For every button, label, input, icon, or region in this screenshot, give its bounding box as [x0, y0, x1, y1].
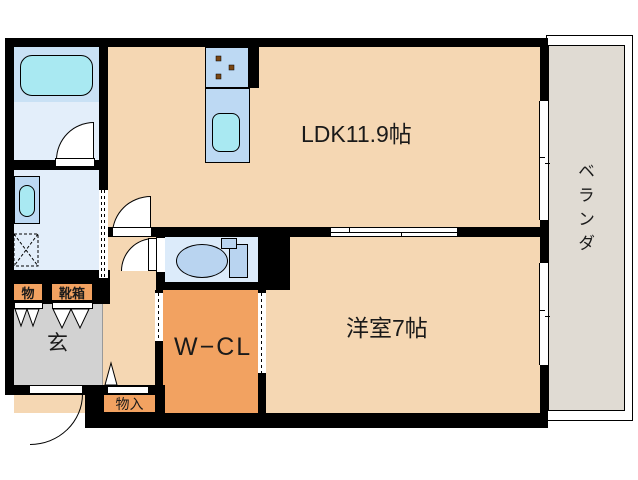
shoebox-door-leaf-icon — [71, 309, 89, 328]
storage-label-box: 物 — [13, 283, 43, 301]
entrance-step-arrow-icon — [105, 363, 117, 385]
shoebox-label: 靴箱 — [59, 283, 85, 302]
western-room-label: 洋室7帖 — [346, 317, 428, 340]
wcl-label: W−CL — [174, 335, 252, 360]
storage-door-leaf-icon — [27, 309, 39, 326]
plan-symbols — [0, 0, 638, 480]
storage-door-leaf-icon — [15, 309, 27, 326]
shoebox-door-leaf-icon — [53, 309, 71, 328]
stove-burner-icon — [229, 65, 234, 70]
hall-storage-label-box: 物入 — [103, 394, 156, 413]
stove-burner-icon — [216, 56, 221, 61]
floor-plan: LDK11.9帖 洋室7帖 W−CL 玄 ベランダ 物 靴箱 物入 — [0, 0, 638, 480]
storage-label: 物 — [21, 283, 34, 302]
shoebox-label-box: 靴箱 — [51, 283, 93, 301]
stove-burner-icon — [216, 74, 221, 79]
ldk-label: LDK11.9帖 — [301, 123, 412, 146]
entrance-label: 玄 — [47, 333, 68, 354]
veranda-label: ベランダ — [576, 162, 593, 258]
hall-storage-label: 物入 — [116, 394, 144, 414]
